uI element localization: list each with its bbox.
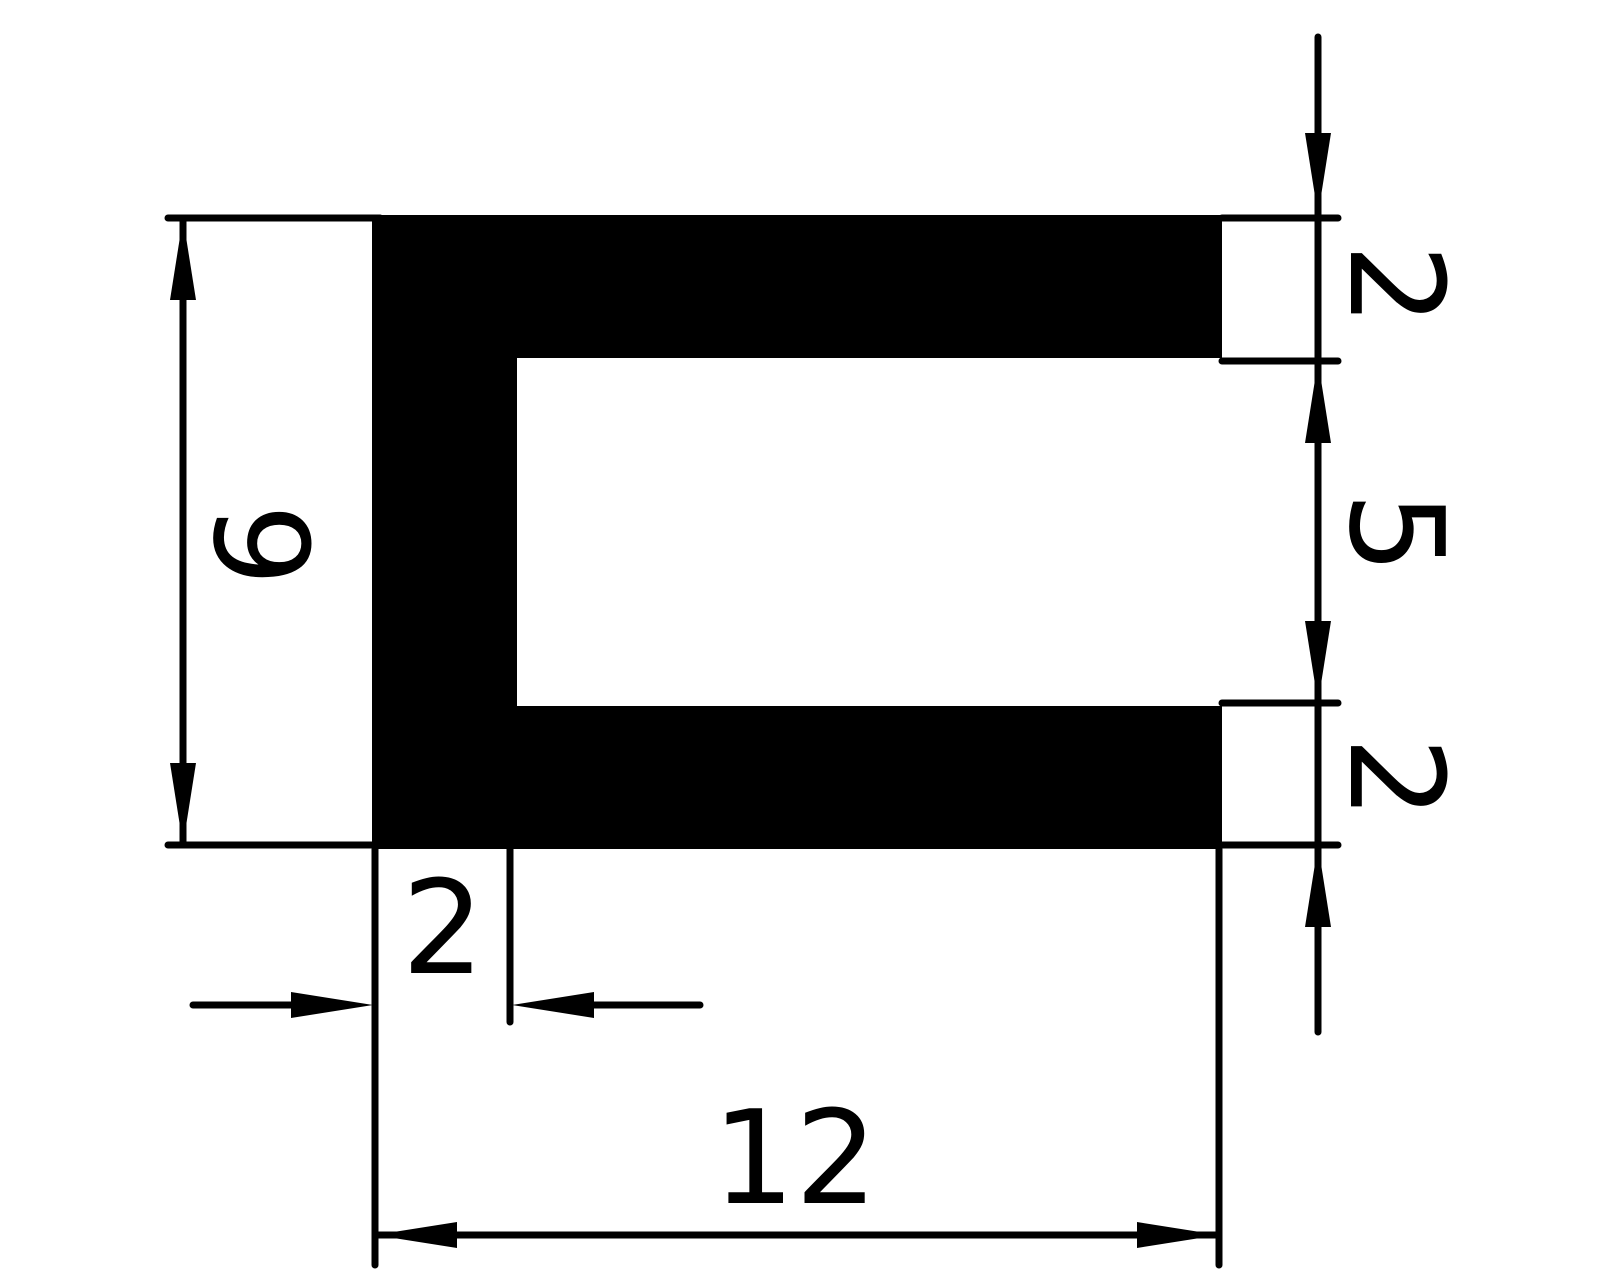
arrowhead-right-icon — [291, 992, 373, 1018]
arrowhead-left-icon — [512, 992, 594, 1018]
dimension-height: 9 — [168, 218, 380, 845]
height-dimension-label: 9 — [184, 504, 336, 587]
dimension-width: 12 — [375, 849, 1219, 1265]
u-profile-shape — [372, 215, 1222, 849]
u-profile-technical-drawing: 9 2 5 2 2 — [0, 0, 1600, 1280]
drawing-canvas: 9 2 5 2 2 — [0, 0, 1600, 1280]
arrowhead-up-icon — [1305, 361, 1331, 443]
arrowhead-up-icon — [170, 218, 196, 300]
arrowhead-right-icon — [1137, 1222, 1219, 1248]
dimension-right-column: 2 5 2 — [1222, 37, 1472, 1032]
dimension-wall-thickness: 2 — [193, 849, 700, 1265]
arrowhead-down-icon — [1305, 621, 1331, 703]
arrowhead-left-icon — [375, 1222, 457, 1248]
arrowhead-up-icon — [1305, 845, 1331, 927]
arrowhead-down-icon — [1305, 133, 1331, 215]
width-dimension-label: 12 — [712, 1082, 877, 1234]
arrowhead-down-icon — [170, 763, 196, 845]
top-flange-dimension-label: 2 — [1320, 244, 1472, 327]
opening-dimension-label: 5 — [1320, 492, 1472, 575]
bottom-flange-dimension-label: 2 — [1320, 737, 1472, 820]
wall-dimension-label: 2 — [402, 852, 485, 1004]
